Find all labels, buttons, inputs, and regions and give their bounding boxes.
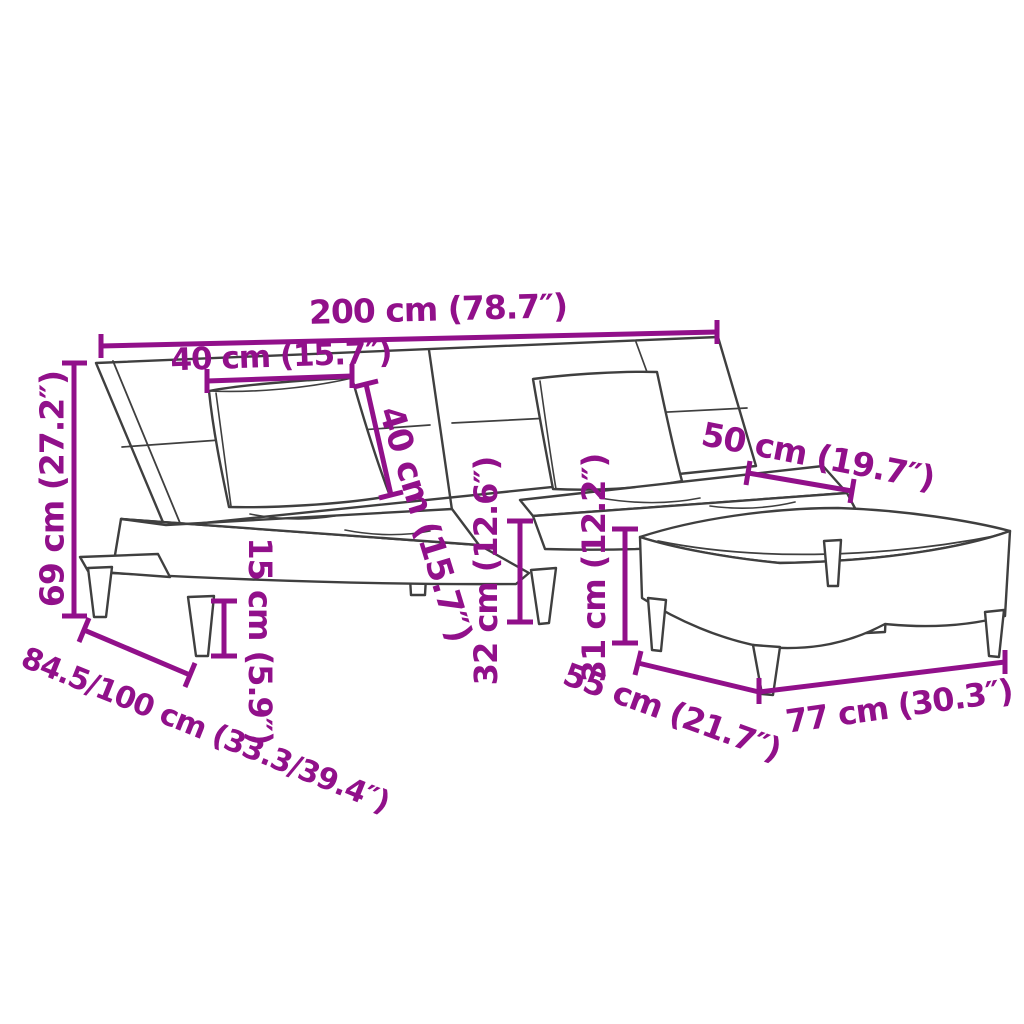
sofa-leg-rear-right [824,540,841,586]
dim-label-footstool-height: 31 cm (12.2″) [578,454,610,683]
dim-label-seat-height: 32 cm (12.6″) [470,457,502,686]
dim-label-leg-height: 15 cm (5.9″) [244,537,276,744]
sofa-leg-front-right [531,568,556,624]
sofa-line-art-canvas [0,0,1024,1024]
footstool-leg-right [985,610,1004,657]
product-dimension-diagram: 200 cm (78.7″) 40 cm (15.7″) 40 cm (15.7… [0,0,1024,1024]
sofa-leg-rear-left [88,567,112,617]
footstool-leg-left [648,598,666,651]
sofa-line-art [80,337,1010,695]
sofa-leg-front-left [188,596,214,656]
dim-label-pillow-width: 40 cm (15.7″) [170,338,392,377]
dim-label-total-width: 200 cm (78.7″) [309,289,568,329]
dim-label-backrest-height: 69 cm (27.2″) [36,371,69,607]
dim-line-leg-height [211,601,237,656]
